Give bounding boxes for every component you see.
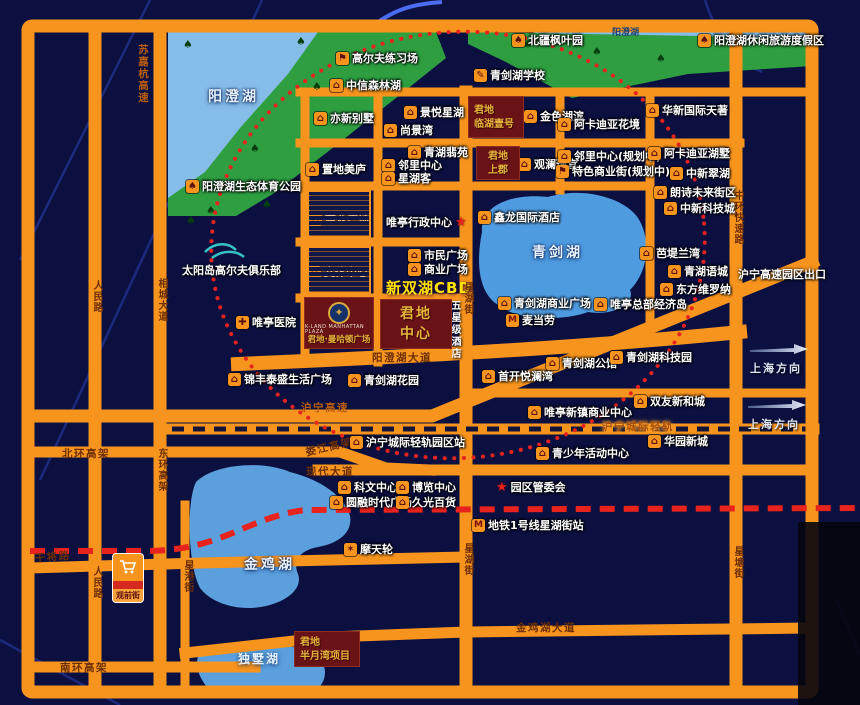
- building-icon: ⌂: [478, 211, 491, 224]
- poi-label: 沪宁城际轻轨园区站: [366, 437, 465, 448]
- map-poi: ⌂星湖客: [382, 172, 431, 185]
- poi-label: 摩天轮: [360, 544, 393, 555]
- map-poi: M麦当劳: [506, 314, 555, 327]
- tree-icon: ♠: [698, 34, 711, 47]
- map-label: 阳澄湖: [208, 86, 259, 106]
- project-box: 君地半月湾项目: [294, 631, 360, 667]
- direction-label: 上海方向: [750, 360, 808, 376]
- map-label: 青剑湖: [532, 242, 583, 262]
- project-name: 君地: [488, 150, 508, 163]
- building-icon: ⌂: [670, 167, 683, 180]
- shop-icon: ⚑: [556, 165, 569, 178]
- poi-label: 中新科技城: [680, 203, 735, 214]
- mcd-icon: M: [506, 314, 519, 327]
- poi-label: 东方维罗纳: [676, 284, 731, 295]
- plaza-name: 君地·曼哈顿广场: [308, 336, 371, 345]
- map-label: 金鸡湖: [244, 554, 295, 574]
- poi-label: 阿卡迪亚花境: [574, 119, 640, 130]
- map-poi: ♠阳澄湖休闲旅游度假区: [698, 34, 824, 47]
- poi-label: 商业广场: [424, 264, 468, 275]
- map-label: 北环高架: [62, 446, 110, 461]
- map-poi: ⌂中新科技城: [664, 202, 735, 215]
- map-label: 阳澄湖大道: [372, 350, 432, 365]
- map-poi: ⌂青湖语城: [668, 265, 728, 278]
- cross-icon: ✚: [236, 316, 249, 329]
- poi-label: 邻里中心: [398, 160, 442, 171]
- map-label: 人民路: [89, 280, 104, 313]
- poi-label: 华园新城: [664, 436, 708, 447]
- poi-label: 博览中心: [412, 482, 456, 493]
- building-icon: ⌂: [408, 146, 421, 159]
- building-icon: ⌂: [482, 370, 495, 383]
- poi-label: 青剑湖科技园: [626, 352, 692, 363]
- building-icon: ⌂: [408, 249, 421, 262]
- poi-label: 阳澄湖休闲旅游度假区: [714, 35, 824, 46]
- map-poi: ★园区管委会: [496, 481, 566, 494]
- poi-label: 青剑湖学校: [490, 70, 545, 81]
- building-icon: ⌂: [648, 435, 661, 448]
- map-label: 星湖街: [460, 282, 475, 315]
- map-label: 沪宁城际轻轨: [602, 419, 674, 434]
- building-icon: ⌂: [640, 247, 653, 260]
- map-poi: ⌂青剑湖花园: [348, 374, 419, 387]
- map-label: 星港街: [180, 560, 195, 593]
- poi-label: 久光百货: [412, 497, 456, 508]
- map-label: 太阳岛高尔夫俱乐部: [182, 262, 281, 278]
- building-icon: ⌂: [634, 395, 647, 408]
- map-label: 星塘街: [730, 546, 745, 579]
- poi-label: 亦新别墅: [330, 113, 374, 124]
- map-poi: ✚唯亭医院: [236, 316, 296, 329]
- poi-label: 中信森林湖: [346, 80, 401, 91]
- building-icon: ⌂: [396, 496, 409, 509]
- map-poi: ⌂朗诗未来街区: [654, 186, 736, 199]
- golf-icon: ⚑: [336, 52, 349, 65]
- logo-red-strip: [113, 581, 143, 589]
- direction-label: 上海方向: [748, 416, 806, 432]
- map-poi: ⌂青剑湖商业广场: [498, 297, 591, 310]
- building-icon: ⌂: [528, 406, 541, 419]
- map-poi: 唯亭行政中心★: [386, 216, 467, 229]
- project-box: 君地临湖壹号: [468, 96, 524, 138]
- building-icon: ⌂: [610, 351, 623, 364]
- building-icon: ⌂: [306, 163, 319, 176]
- building-icon: ⌂: [648, 147, 661, 160]
- map-poi: ⌂鑫龙国际酒店: [478, 211, 560, 224]
- poi-label: 青少年活动中心: [552, 448, 629, 459]
- map-poi: ⌂邻里中心: [382, 159, 442, 172]
- map-label: 人民路: [89, 566, 104, 599]
- poi-label: 唯亭医院: [252, 317, 296, 328]
- right-arrow-icon: [748, 396, 806, 415]
- map-poi: ⌂华园新城: [648, 435, 708, 448]
- map-label: 现代大道: [306, 464, 354, 479]
- building-icon: ⌂: [382, 172, 395, 185]
- poi-label: 青剑湖公馆: [562, 358, 617, 369]
- tree-icon: ♠: [512, 34, 525, 47]
- building-icon: ⌂: [314, 112, 327, 125]
- building-icon: ⌂: [498, 297, 511, 310]
- guanqian-street-label: 观前街: [113, 589, 143, 602]
- map-label: 独墅湖: [238, 650, 280, 667]
- building-icon: ⌂: [668, 265, 681, 278]
- poi-label: 朗诗未来街区: [670, 187, 736, 198]
- map-poi: ⌂中信森林湖: [330, 79, 401, 92]
- building-icon: ⌂: [384, 124, 397, 137]
- map-poi: ⌂唯亭总部经济岛: [594, 298, 687, 311]
- map-poi: ⌂双友新和城: [634, 395, 705, 408]
- project-box: 君地中心: [380, 299, 452, 349]
- map-poi: ⌂科文中心: [338, 481, 398, 494]
- building-icon: ⌂: [646, 104, 659, 117]
- poi-label: 高尔夫练习场: [352, 53, 418, 64]
- poi-label: 科文中心: [354, 482, 398, 493]
- map-poi: ⌂亦新别墅: [314, 112, 374, 125]
- map-poi: ⌂景悦星湖: [404, 106, 464, 119]
- map-label: 苏嘉杭高速: [136, 44, 151, 104]
- location-map: ♠♠♠ ♠♠♠ ♠♠♠ ♠ 阳澄湖青剑湖金鸡湖独墅湖阳澄湖太阳岛高尔夫俱乐部沪宁…: [0, 0, 860, 705]
- map-poi: ⌂青少年活动中心: [536, 447, 629, 460]
- building-icon: ⌂: [524, 110, 537, 123]
- map-poi: ♠阳澄湖生态体育公园: [186, 180, 301, 193]
- poi-label: 阳澄湖生态体育公园: [202, 181, 301, 192]
- poi-label: 青剑湖花园: [364, 375, 419, 386]
- map-poi: ♠北疆枫叶园: [512, 34, 583, 47]
- poi-label: 首开悦澜湾: [498, 371, 553, 382]
- map-poi: ✶摩天轮: [344, 543, 393, 556]
- map-poi: ⌂阿卡迪亚湖墅: [648, 147, 730, 160]
- project-box: 君地上郡: [476, 146, 520, 180]
- project-name: 君地: [400, 305, 432, 323]
- project-name: 君地: [300, 636, 354, 649]
- map-poi: ⌂商业广场: [408, 263, 468, 276]
- project-name: 君地: [474, 104, 518, 117]
- poi-label: 星湖客: [398, 173, 431, 184]
- poi-label: 唯亭行政中心: [386, 217, 452, 228]
- ferris-icon: ✶: [344, 543, 357, 556]
- map-poi: ⌂青湖翡苑: [408, 146, 468, 159]
- poi-label: 中新翠湖: [686, 168, 730, 179]
- building-icon: ⌂: [330, 496, 343, 509]
- poi-label: 市民广场: [424, 250, 468, 261]
- project-name: 半月湾项目: [300, 650, 354, 663]
- poi-label: 特色商业街(规划中): [572, 166, 670, 177]
- map-poi: ⌂博览中心: [396, 481, 456, 494]
- map-poi: ⌂市民广场: [408, 249, 468, 262]
- building-icon: ⌂: [338, 481, 351, 494]
- project-manhattan-plaza: ✦ K-LAND MANHATTAN PLAZA 君地·曼哈顿广场: [304, 297, 374, 349]
- poi-label: 青湖翡苑: [424, 147, 468, 158]
- map-poi: ✎青剑湖学校: [474, 69, 545, 82]
- map-label: 沪宁高速: [301, 400, 349, 415]
- building-icon: ⌂: [536, 447, 549, 460]
- building-icon: ⌂: [396, 481, 409, 494]
- poi-label: 北疆枫叶园: [528, 35, 583, 46]
- poi-label: 尚景湾: [400, 125, 433, 136]
- map-poi: ⌂青剑湖公馆: [546, 357, 617, 370]
- poi-label: 唯亭新镇商业中心: [544, 407, 632, 418]
- poi-label: 园区管委会: [511, 482, 566, 493]
- building-icon: ⌂: [228, 373, 241, 386]
- poi-label: 芭堤兰湾: [656, 248, 700, 259]
- map-poi: ⚑特色商业街(规划中): [556, 165, 670, 178]
- guanqian-street-logo: 观前街: [112, 553, 144, 603]
- building-icon: ⌂: [404, 106, 417, 119]
- map-poi: ⌂首开悦澜湾: [482, 370, 553, 383]
- plaza-subtitle: K-LAND MANHATTAN PLAZA: [305, 325, 373, 335]
- project-name: 中心: [400, 325, 432, 343]
- map-label: 娄江高架: [304, 434, 354, 459]
- building-icon: ⌂: [660, 283, 673, 296]
- map-poi: ⌂置地美庐: [306, 163, 366, 176]
- map-poi: ⌂东方维罗纳: [660, 283, 731, 296]
- map-poi: M地铁1号线星湖街站: [472, 519, 584, 532]
- map-label: 东环高架: [154, 448, 169, 492]
- star-icon: ★: [455, 216, 467, 229]
- direction-arrow: 上海方向: [748, 396, 806, 432]
- school-icon: ✎: [474, 69, 487, 82]
- building-icon: ⌂: [348, 374, 361, 387]
- right-arrow-icon: [750, 340, 808, 359]
- map-poi: ⌂华新国际天著: [646, 104, 728, 117]
- map-poi: ⌂唯亭新镇商业中心: [528, 406, 632, 419]
- star-icon: ★: [496, 481, 508, 494]
- metro-icon: M: [472, 519, 485, 532]
- shopping-cart-icon: [113, 554, 143, 581]
- map-poi: ⌂邻里中心(规划中): [558, 150, 661, 163]
- map-poi: ⌂尚景湾: [384, 124, 433, 137]
- map-poi: ⌂阿卡迪亚花境: [558, 118, 640, 131]
- project-name: 上郡: [488, 164, 508, 177]
- map-poi: ⌂青剑湖科技园: [610, 351, 692, 364]
- poi-label: 景悦星湖: [420, 107, 464, 118]
- map-label: 金鸡湖大道: [516, 620, 576, 635]
- plaza-emblem-icon: ✦: [328, 302, 350, 324]
- map-label: 南环高架: [60, 660, 108, 675]
- poi-label: 青湖语城: [684, 266, 728, 277]
- poi-label: 阿卡迪亚湖墅: [664, 148, 730, 159]
- map-poi: ⌂沪宁城际轻轨园区站: [350, 436, 465, 449]
- map-label: 相城大道: [154, 278, 169, 322]
- poi-label: 地铁1号线星湖街站: [488, 520, 584, 531]
- hatched-block: [307, 246, 371, 294]
- map-poi: ⌂中新翠湖: [670, 167, 730, 180]
- map-label: 阳澄湖: [612, 25, 639, 38]
- tree-icon: ♠: [186, 180, 199, 193]
- building-icon: ⌂: [558, 118, 571, 131]
- map-label: 干将路: [34, 548, 71, 566]
- building-icon: ⌂: [654, 186, 667, 199]
- poi-label: 双友新和城: [650, 396, 705, 407]
- direction-arrow: 上海方向: [750, 340, 808, 376]
- map-label: 沪宁高速园区出口: [738, 266, 826, 282]
- project-name: 临湖壹号: [474, 118, 518, 131]
- building-icon: ⌂: [330, 79, 343, 92]
- map-poi: ⚑高尔夫练习场: [336, 52, 418, 65]
- map-poi: ⌂久光百货: [396, 496, 456, 509]
- building-icon: ⌂: [546, 357, 559, 370]
- building-icon: ⌂: [382, 159, 395, 172]
- poi-label: 青剑湖商业广场: [514, 298, 591, 309]
- building-icon: ⌂: [558, 150, 571, 163]
- poi-label: 鑫龙国际酒店: [494, 212, 560, 223]
- building-icon: ⌂: [350, 436, 363, 449]
- poi-label: 华新国际天著: [662, 105, 728, 116]
- building-icon: ⌂: [594, 298, 607, 311]
- map-label: 星湖街: [460, 543, 475, 576]
- map-poi: ⌂锦丰泰盛生活广场: [228, 373, 332, 386]
- building-icon: ⌂: [664, 202, 677, 215]
- poi-label: 唯亭总部经济岛: [610, 299, 687, 310]
- poi-label: 麦当劳: [522, 315, 555, 326]
- map-poi: ⌂芭堤兰湾: [640, 247, 700, 260]
- poi-label: 锦丰泰盛生活广场: [244, 374, 332, 385]
- hatched-block: [307, 190, 371, 238]
- building-icon: ⌂: [408, 263, 421, 276]
- poi-label: 置地美庐: [322, 164, 366, 175]
